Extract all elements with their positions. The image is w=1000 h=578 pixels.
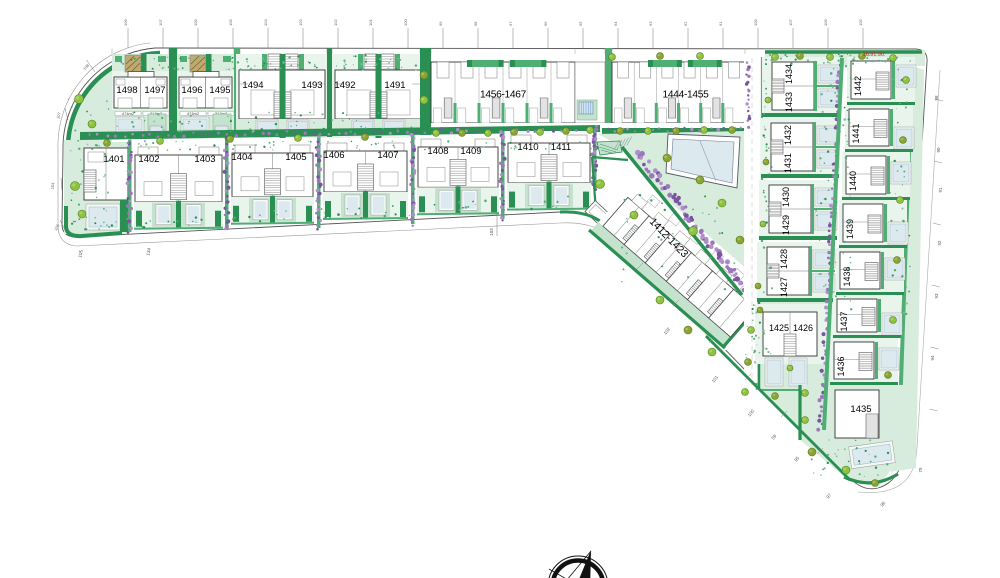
svg-text:1426: 1426 bbox=[793, 323, 813, 333]
svg-text:1401: 1401 bbox=[103, 154, 124, 165]
svg-text:104: 104 bbox=[50, 182, 56, 190]
svg-text:474m2: 474m2 bbox=[187, 111, 200, 116]
svg-text:1411: 1411 bbox=[551, 142, 571, 153]
svg-text:1494: 1494 bbox=[242, 80, 263, 91]
svg-text:1439: 1439 bbox=[845, 219, 855, 239]
svg-text:1410: 1410 bbox=[517, 142, 538, 153]
svg-text:1407: 1407 bbox=[377, 150, 398, 161]
svg-text:1491: 1491 bbox=[384, 80, 405, 91]
svg-text:1497: 1497 bbox=[144, 85, 165, 96]
svg-text:107: 107 bbox=[158, 19, 163, 26]
svg-text:1442: 1442 bbox=[853, 76, 863, 96]
svg-text:16.91.90.: 16.91.90. bbox=[863, 52, 886, 58]
svg-text:1434: 1434 bbox=[784, 64, 794, 84]
svg-text:1430: 1430 bbox=[781, 187, 791, 207]
svg-text:1444-1455: 1444-1455 bbox=[662, 90, 709, 101]
svg-text:92: 92 bbox=[937, 240, 942, 246]
svg-text:1405: 1405 bbox=[285, 152, 306, 163]
svg-text:1402: 1402 bbox=[138, 154, 159, 165]
svg-text:107: 107 bbox=[788, 19, 793, 26]
svg-text:79: 79 bbox=[918, 467, 923, 473]
svg-text:106: 106 bbox=[753, 19, 758, 26]
svg-text:1495: 1495 bbox=[209, 85, 230, 96]
svg-text:1435: 1435 bbox=[850, 404, 871, 415]
svg-text:97: 97 bbox=[508, 21, 513, 26]
svg-text:95: 95 bbox=[578, 21, 583, 26]
svg-text:106: 106 bbox=[823, 19, 828, 26]
svg-text:1408: 1408 bbox=[427, 146, 448, 157]
svg-text:94: 94 bbox=[613, 21, 618, 26]
svg-text:96: 96 bbox=[543, 21, 548, 26]
svg-text:1409: 1409 bbox=[460, 146, 481, 157]
svg-text:1432: 1432 bbox=[783, 125, 793, 145]
svg-text:1433: 1433 bbox=[784, 92, 794, 112]
svg-text:1406: 1406 bbox=[323, 150, 344, 161]
svg-text:1431: 1431 bbox=[783, 153, 793, 173]
svg-text:92: 92 bbox=[683, 21, 688, 26]
svg-text:102: 102 bbox=[333, 19, 338, 26]
svg-text:1440: 1440 bbox=[848, 171, 858, 191]
svg-text:104: 104 bbox=[263, 19, 268, 26]
svg-text:103: 103 bbox=[489, 228, 494, 236]
svg-text:1404: 1404 bbox=[231, 152, 252, 163]
svg-text:1441: 1441 bbox=[851, 123, 861, 143]
svg-text:1436: 1436 bbox=[836, 356, 846, 376]
svg-text:1456-1467: 1456-1467 bbox=[480, 90, 527, 101]
svg-text:91: 91 bbox=[718, 21, 723, 26]
svg-text:1427: 1427 bbox=[779, 277, 789, 297]
svg-text:105: 105 bbox=[858, 19, 863, 26]
svg-text:100: 100 bbox=[403, 19, 408, 26]
svg-text:94: 94 bbox=[930, 355, 935, 361]
svg-text:98: 98 bbox=[473, 21, 478, 26]
svg-text:1403: 1403 bbox=[194, 154, 215, 165]
svg-text:101: 101 bbox=[368, 19, 373, 26]
svg-text:105: 105 bbox=[228, 19, 233, 26]
svg-text:1496: 1496 bbox=[181, 85, 202, 96]
svg-text:90: 90 bbox=[936, 147, 941, 153]
svg-text:1429: 1429 bbox=[781, 215, 791, 235]
svg-text:106: 106 bbox=[123, 19, 128, 26]
svg-text:93: 93 bbox=[648, 21, 653, 26]
svg-text:1493: 1493 bbox=[301, 80, 322, 91]
svg-text:474m2: 474m2 bbox=[122, 111, 135, 116]
svg-text:93: 93 bbox=[934, 293, 939, 299]
svg-text:99: 99 bbox=[438, 21, 443, 26]
svg-text:91: 91 bbox=[938, 187, 943, 193]
svg-text:1492: 1492 bbox=[334, 80, 355, 91]
svg-text:1428: 1428 bbox=[779, 249, 789, 269]
svg-text:1425: 1425 bbox=[769, 323, 789, 333]
svg-text:106: 106 bbox=[193, 19, 198, 26]
svg-text:103: 103 bbox=[298, 19, 303, 26]
svg-text:1498: 1498 bbox=[116, 85, 137, 96]
svg-text:1438: 1438 bbox=[842, 266, 852, 286]
svg-text:1437: 1437 bbox=[839, 311, 849, 331]
